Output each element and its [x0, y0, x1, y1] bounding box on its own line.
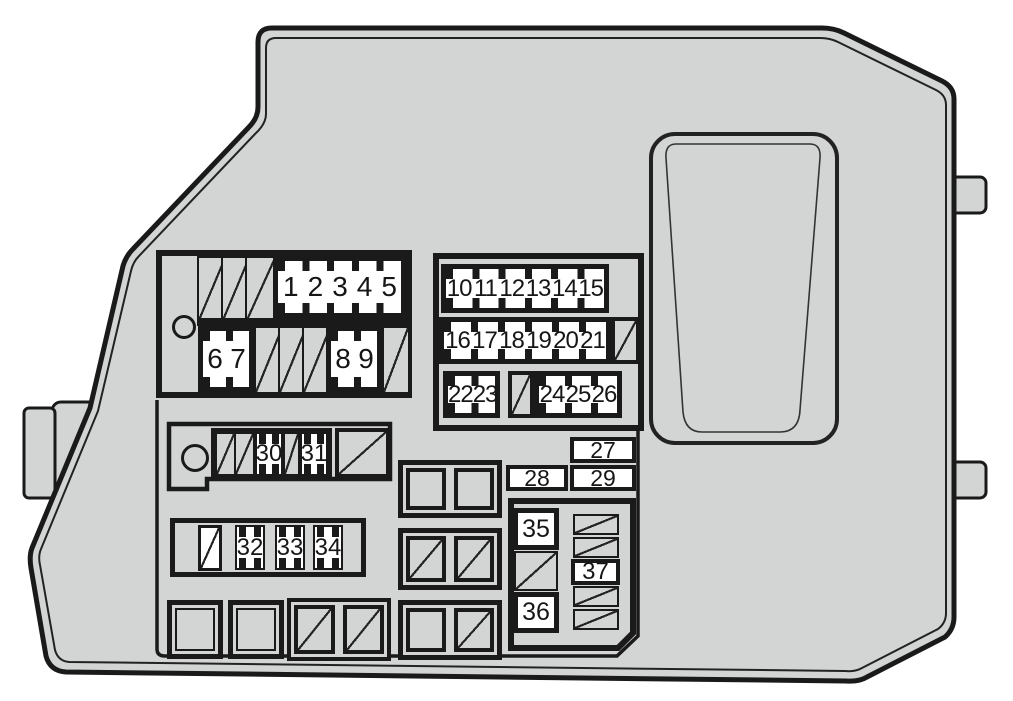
- relay-slot-group: [398, 528, 502, 590]
- empty-slot: [573, 586, 619, 607]
- fuse-36-label: 36: [522, 598, 550, 627]
- fuse-32: 32: [235, 525, 265, 570]
- fuse-6: 6: [203, 343, 226, 375]
- fuse-block-a: 1 2 3 4 5 6 7 8 9: [156, 250, 412, 398]
- empty-relay-slot: [294, 605, 335, 654]
- fuse-strip-1-5: 1 2 3 4 5: [273, 256, 406, 318]
- fuse-8: 8: [331, 343, 354, 375]
- empty-slot: [514, 551, 558, 591]
- fuse-19: 19: [525, 327, 552, 355]
- fuse-30-label: 30: [256, 440, 283, 468]
- fuse-28: 28: [506, 465, 568, 491]
- fuse-27: 27: [570, 437, 636, 463]
- fuse-25: 25: [565, 381, 591, 409]
- fuse-31: 31: [300, 432, 328, 476]
- fuse-28-label: 28: [524, 465, 550, 492]
- fuse-strip-6-7: 6 7: [198, 326, 254, 392]
- fuse-5: 5: [376, 271, 401, 303]
- fuse-29-label: 29: [590, 465, 616, 492]
- fuse-17: 17: [471, 327, 498, 355]
- relay-slot-group: [287, 598, 391, 661]
- fuse-20: 20: [552, 327, 579, 355]
- mounting-hole-icon: [181, 444, 209, 472]
- fuse-box-diagram-page: { "diagram": { "type": "engine-compartme…: [0, 0, 1013, 701]
- empty-relay-slot: [454, 608, 494, 652]
- fuse-13: 13: [525, 275, 551, 303]
- fuse-2: 2: [303, 271, 328, 303]
- fuse-33-label: 33: [277, 534, 304, 562]
- empty-slot: [215, 432, 236, 476]
- fuse-row-30-31: 30 31: [211, 428, 332, 480]
- empty-slot: [234, 432, 255, 476]
- fuse-36: 36: [513, 592, 559, 633]
- fuse-14: 14: [551, 275, 577, 303]
- fuse-row-32-34: 32 33 34: [170, 518, 366, 577]
- relay-slot-inner: [175, 608, 215, 651]
- fuse-block-b: 10 11 12 13 14 15 16 17 18 19 20 21 22 2…: [433, 253, 644, 431]
- fuse-35: 35: [513, 508, 559, 550]
- empty-relay-slot: [454, 536, 494, 582]
- relay-slot-inner: [236, 608, 276, 651]
- empty-slot: [573, 514, 619, 535]
- empty-slot: [283, 432, 300, 476]
- fuse-30: 30: [255, 432, 283, 476]
- empty-relay-slot: [335, 428, 390, 478]
- fuse-23: 23: [473, 381, 498, 409]
- fuse-33: 33: [275, 525, 305, 570]
- relay-slot: [406, 608, 446, 652]
- relay-slot: [167, 600, 223, 659]
- fuse-24: 24: [539, 381, 565, 409]
- mounting-hole-icon: [172, 315, 196, 339]
- fuse-1: 1: [278, 271, 303, 303]
- fuse-26: 26: [591, 381, 617, 409]
- fuse-34: 34: [313, 525, 343, 570]
- fuse-21: 21: [579, 327, 606, 355]
- fuse-35-label: 35: [522, 515, 550, 544]
- fuse-strip-10-15: 10 11 12 13 14 15: [441, 264, 609, 313]
- fuse-29: 29: [570, 465, 636, 491]
- empty-relay-slot: [406, 536, 446, 582]
- empty-relay-slot: [343, 605, 384, 654]
- relay-slot-group: [398, 460, 502, 518]
- relay-slot-group: [398, 600, 502, 660]
- relay-slot: [454, 468, 494, 510]
- fuse-11: 11: [472, 275, 498, 303]
- fuse-9: 9: [354, 343, 377, 375]
- fuse-27-label: 27: [590, 437, 616, 464]
- fuse-strip-8-9: 8 9: [326, 326, 382, 392]
- fuse-22: 22: [448, 381, 473, 409]
- empty-slot: [382, 326, 410, 394]
- fuse-37-label: 37: [582, 558, 609, 586]
- relay-slot: [228, 600, 284, 659]
- fuse-10: 10: [446, 275, 472, 303]
- left-connector-front: [24, 408, 55, 498]
- empty-slot: [508, 371, 534, 418]
- empty-slot: [573, 609, 619, 630]
- fuse-32-label: 32: [237, 534, 264, 562]
- fuse-12: 12: [499, 275, 525, 303]
- fuse-34-label: 34: [315, 534, 342, 562]
- fuse-3: 3: [327, 271, 352, 303]
- fuse-37: 37: [571, 559, 620, 585]
- row-divider: [197, 318, 406, 326]
- fuse-18: 18: [498, 327, 525, 355]
- fuse-strip-22-23: 22 23: [443, 371, 500, 418]
- relay-slot: [406, 468, 446, 510]
- empty-slot: [573, 537, 619, 558]
- empty-slot: [611, 317, 640, 364]
- fuse-15: 15: [577, 275, 603, 303]
- fuse-4: 4: [352, 271, 377, 303]
- fuse-16: 16: [444, 327, 471, 355]
- fuse-strip-24-26: 24 25 26: [534, 371, 622, 418]
- fuse-7: 7: [226, 343, 249, 375]
- empty-slot: [198, 525, 222, 571]
- fuse-strip-16-21: 16 17 18 19 20 21: [439, 317, 611, 364]
- fuse-31-label: 31: [301, 440, 328, 468]
